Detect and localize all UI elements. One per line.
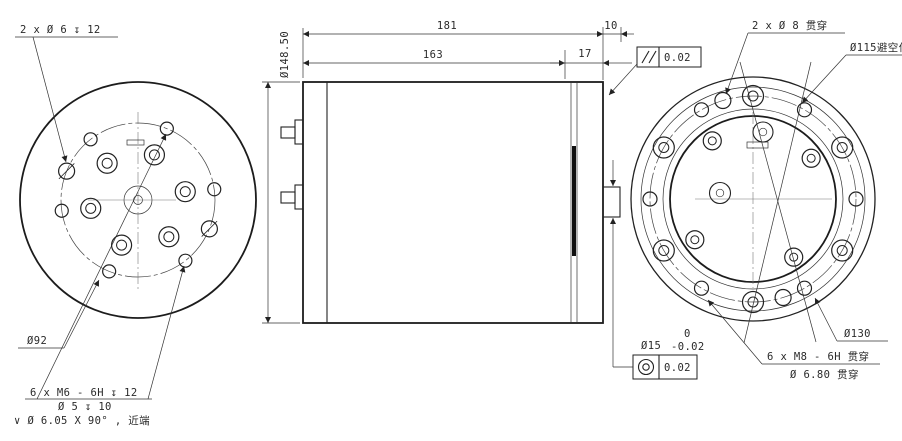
inner-counterbored-hole (703, 132, 721, 150)
parallelism-frame: 0.02 (609, 47, 701, 95)
dim-17: 17 (578, 48, 591, 60)
counterbored-hole (144, 145, 164, 165)
construction-diagonal-1 (740, 62, 816, 342)
m8-note-line1: 6 x M8 - 6H 贯穿 (767, 350, 869, 363)
tap-leader-a (37, 134, 166, 399)
through-hole-6-8 (695, 103, 709, 117)
drawing-canvas: 2 x Ø 6 ↧ 12 Ø92 6 x M6 - 6H ↧ 12 Ø 5 ↧ … (0, 0, 902, 441)
m8-note-line2: Ø 6.80 贯穿 (790, 368, 859, 381)
dim-163: 163 (423, 49, 443, 61)
right-keyway-marker (747, 142, 768, 148)
clearance-leader (802, 55, 846, 103)
parallelism-leader (609, 64, 637, 95)
inner-counterbored-hole (807, 154, 815, 162)
tap-note-line3: ∨ Ø 6.05 X 90° , 近端 (14, 414, 150, 427)
bcd130-label: Ø130 (844, 328, 871, 340)
connector-body-2 (295, 185, 303, 209)
inner-pin-2-hole (716, 189, 724, 197)
counterbored-hole (175, 182, 195, 202)
concentricity-value: 0.02 (664, 362, 691, 374)
counterbored-hole (86, 203, 96, 213)
inner-pin-1 (753, 122, 773, 142)
counterbored-hole (102, 158, 112, 168)
through8-note: 2 x Ø 8 贯穿 (752, 19, 828, 32)
inner-counterbored-hole (708, 137, 716, 145)
right-seam-band (572, 146, 576, 256)
shaft-tol-lower: -0.02 (671, 341, 705, 353)
shaft-dia: Ø15 (641, 340, 661, 352)
counterbored-hole (112, 235, 132, 255)
bcd92-label: Ø92 (27, 335, 47, 347)
counterbored-hole (81, 198, 101, 218)
left-keyway-marker (127, 140, 144, 145)
inner-counterbored-hole (802, 149, 820, 167)
inner-counterbored-hole (686, 231, 704, 249)
through-hole-6-8 (695, 281, 709, 295)
tap-leader-b (148, 266, 184, 399)
counterbored-hole (159, 227, 179, 247)
parallelism-value: 0.02 (664, 52, 691, 64)
connector-stem-1 (281, 127, 295, 138)
tap-note-line2: Ø 5 ↧ 10 (58, 401, 112, 413)
dim-10: 10 (604, 20, 617, 32)
side-view: 181 10 163 17 Ø148.50 0.02 (262, 20, 705, 379)
dim-outer-diameter: Ø148.50 (279, 31, 291, 78)
inner-counterbored-hole (785, 248, 803, 266)
right-end-view: 2 x Ø 8 贯穿 Ø115避空位 Ø130 6 x M8 - 6H 贯穿 Ø… (631, 19, 902, 381)
through-hole-6-8 (798, 281, 812, 295)
inner-counterbored-hole (691, 236, 699, 244)
tap-note-line1: 6 x M6 - 6H ↧ 12 (30, 387, 138, 399)
drawing-page: 2 x Ø 6 ↧ 12 Ø92 6 x M6 - 6H ↧ 12 Ø 5 ↧ … (0, 0, 902, 441)
concentricity-frame: 0.02 (633, 355, 697, 379)
clearance-note: Ø115避空位 (850, 41, 902, 54)
through8-leader (726, 33, 748, 94)
dowel-note: 2 x Ø 6 ↧ 12 (20, 24, 101, 36)
output-shaft (603, 187, 620, 217)
inner-pin-2 (710, 183, 731, 204)
counterbored-hole (180, 187, 190, 197)
dim-181: 181 (437, 20, 457, 32)
connector-body-1 (295, 120, 303, 144)
inner-pin-1-hole (759, 128, 767, 136)
counterbored-hole (97, 153, 117, 173)
bcd130-leader (815, 298, 837, 341)
m6-tapped-hole (179, 254, 192, 267)
bcd92-leader (64, 280, 99, 348)
left-end-view: 2 x Ø 6 ↧ 12 Ø92 6 x M6 - 6H ↧ 12 Ø 5 ↧ … (14, 24, 256, 427)
counterbored-hole (164, 232, 174, 242)
body-outline (303, 82, 603, 323)
connector-stem-2 (281, 192, 295, 203)
shaft-tol-upper: 0 (684, 328, 691, 340)
dowel-leader (33, 37, 66, 162)
counterbored-hole (117, 240, 127, 250)
